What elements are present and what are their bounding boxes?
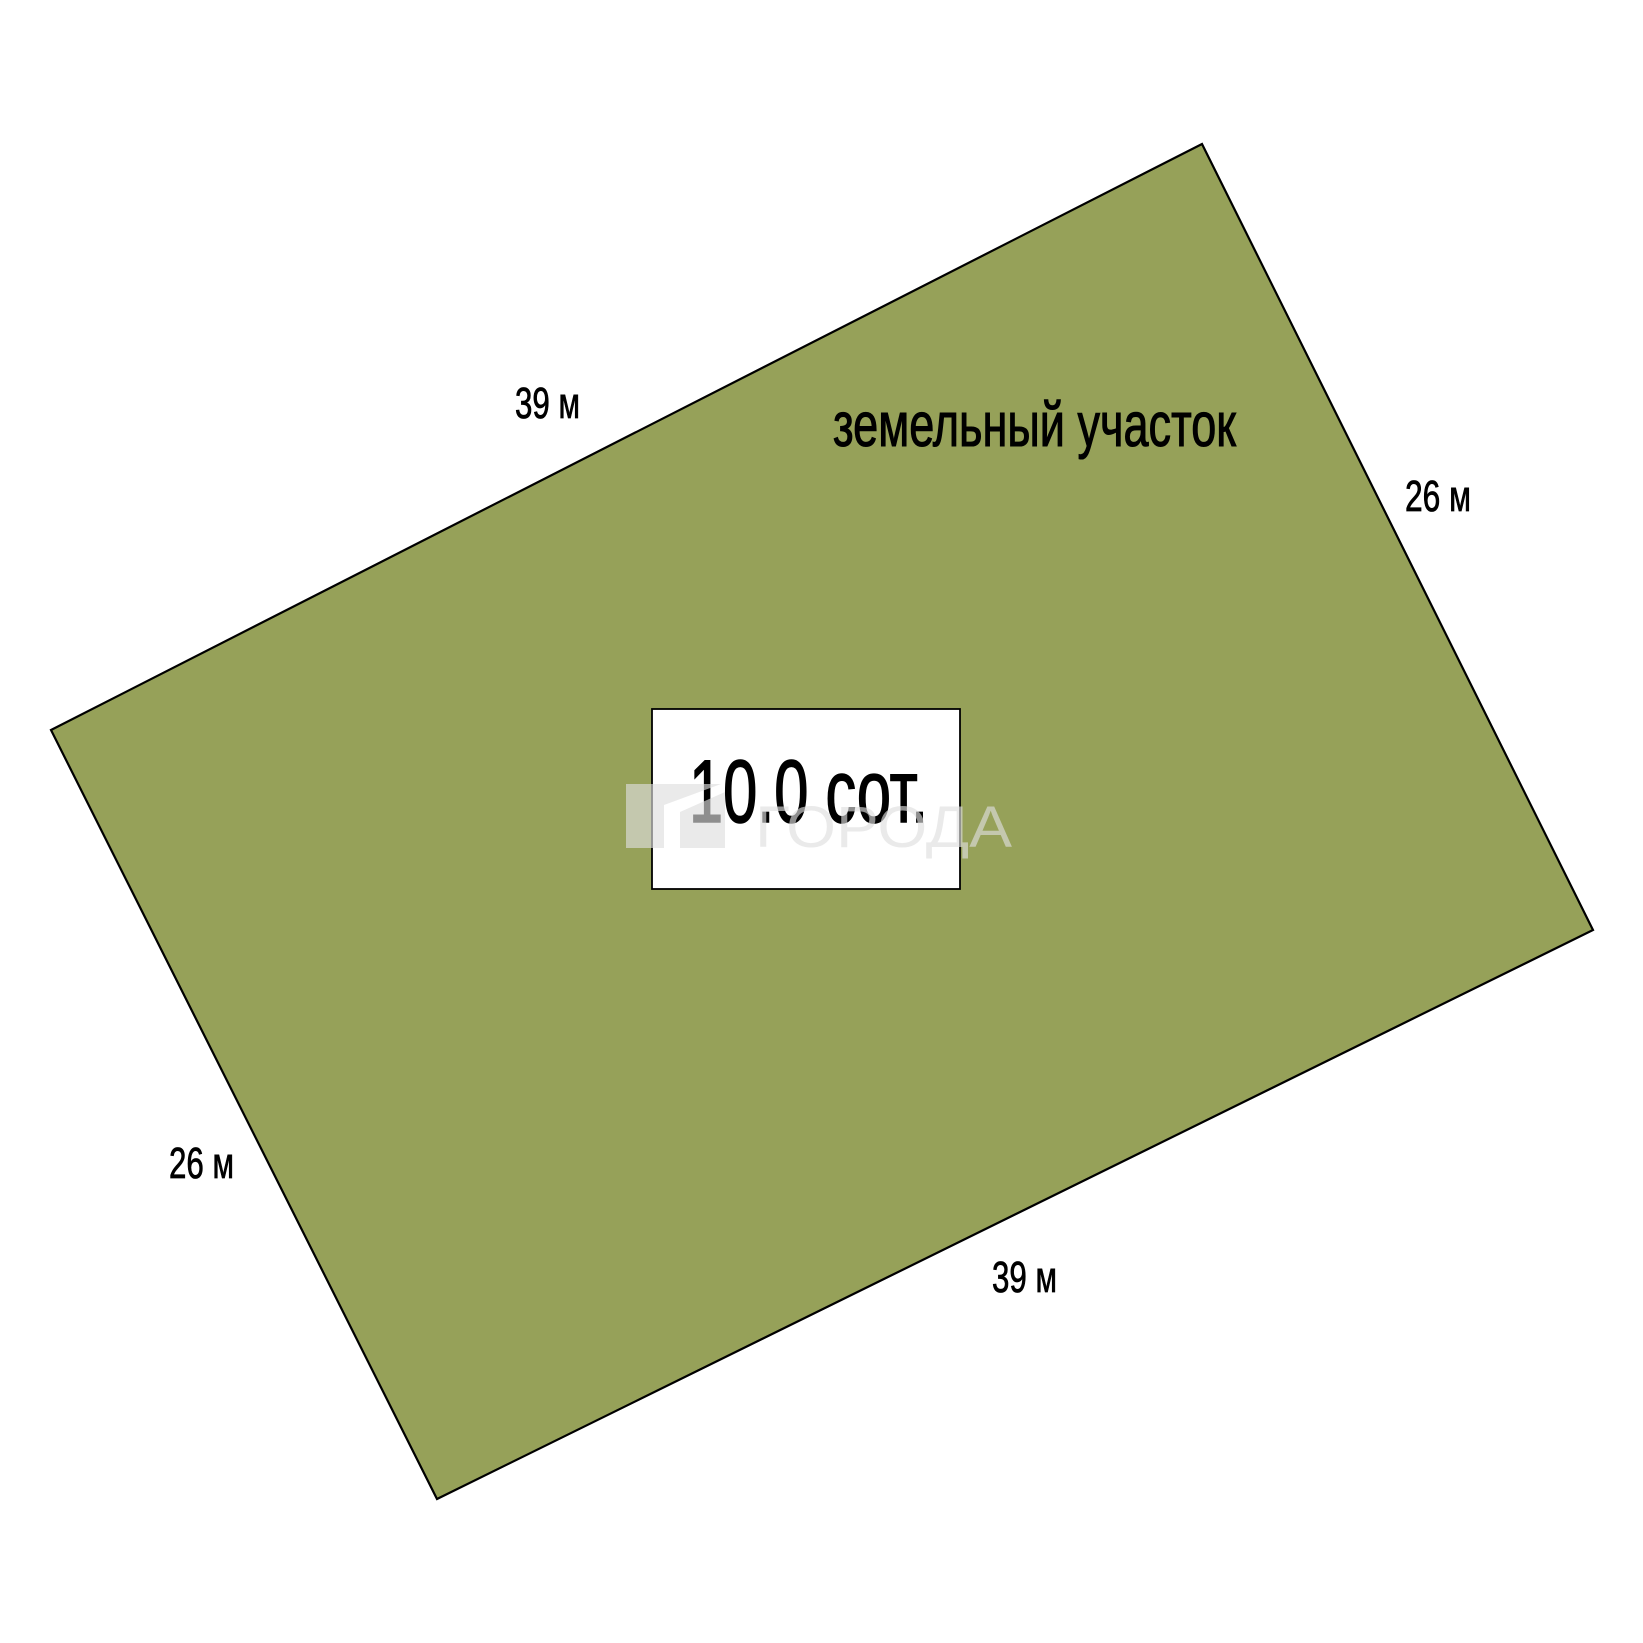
svg-text:ГОРОДА: ГОРОДА bbox=[755, 795, 1012, 860]
svg-text:39 м: 39 м bbox=[992, 1253, 1057, 1302]
svg-text:39 м: 39 м bbox=[515, 379, 580, 428]
svg-text:26 м: 26 м bbox=[169, 1139, 234, 1188]
svg-text:26 м: 26 м bbox=[1405, 472, 1471, 521]
svg-text:земельный участок: земельный участок bbox=[833, 391, 1237, 460]
